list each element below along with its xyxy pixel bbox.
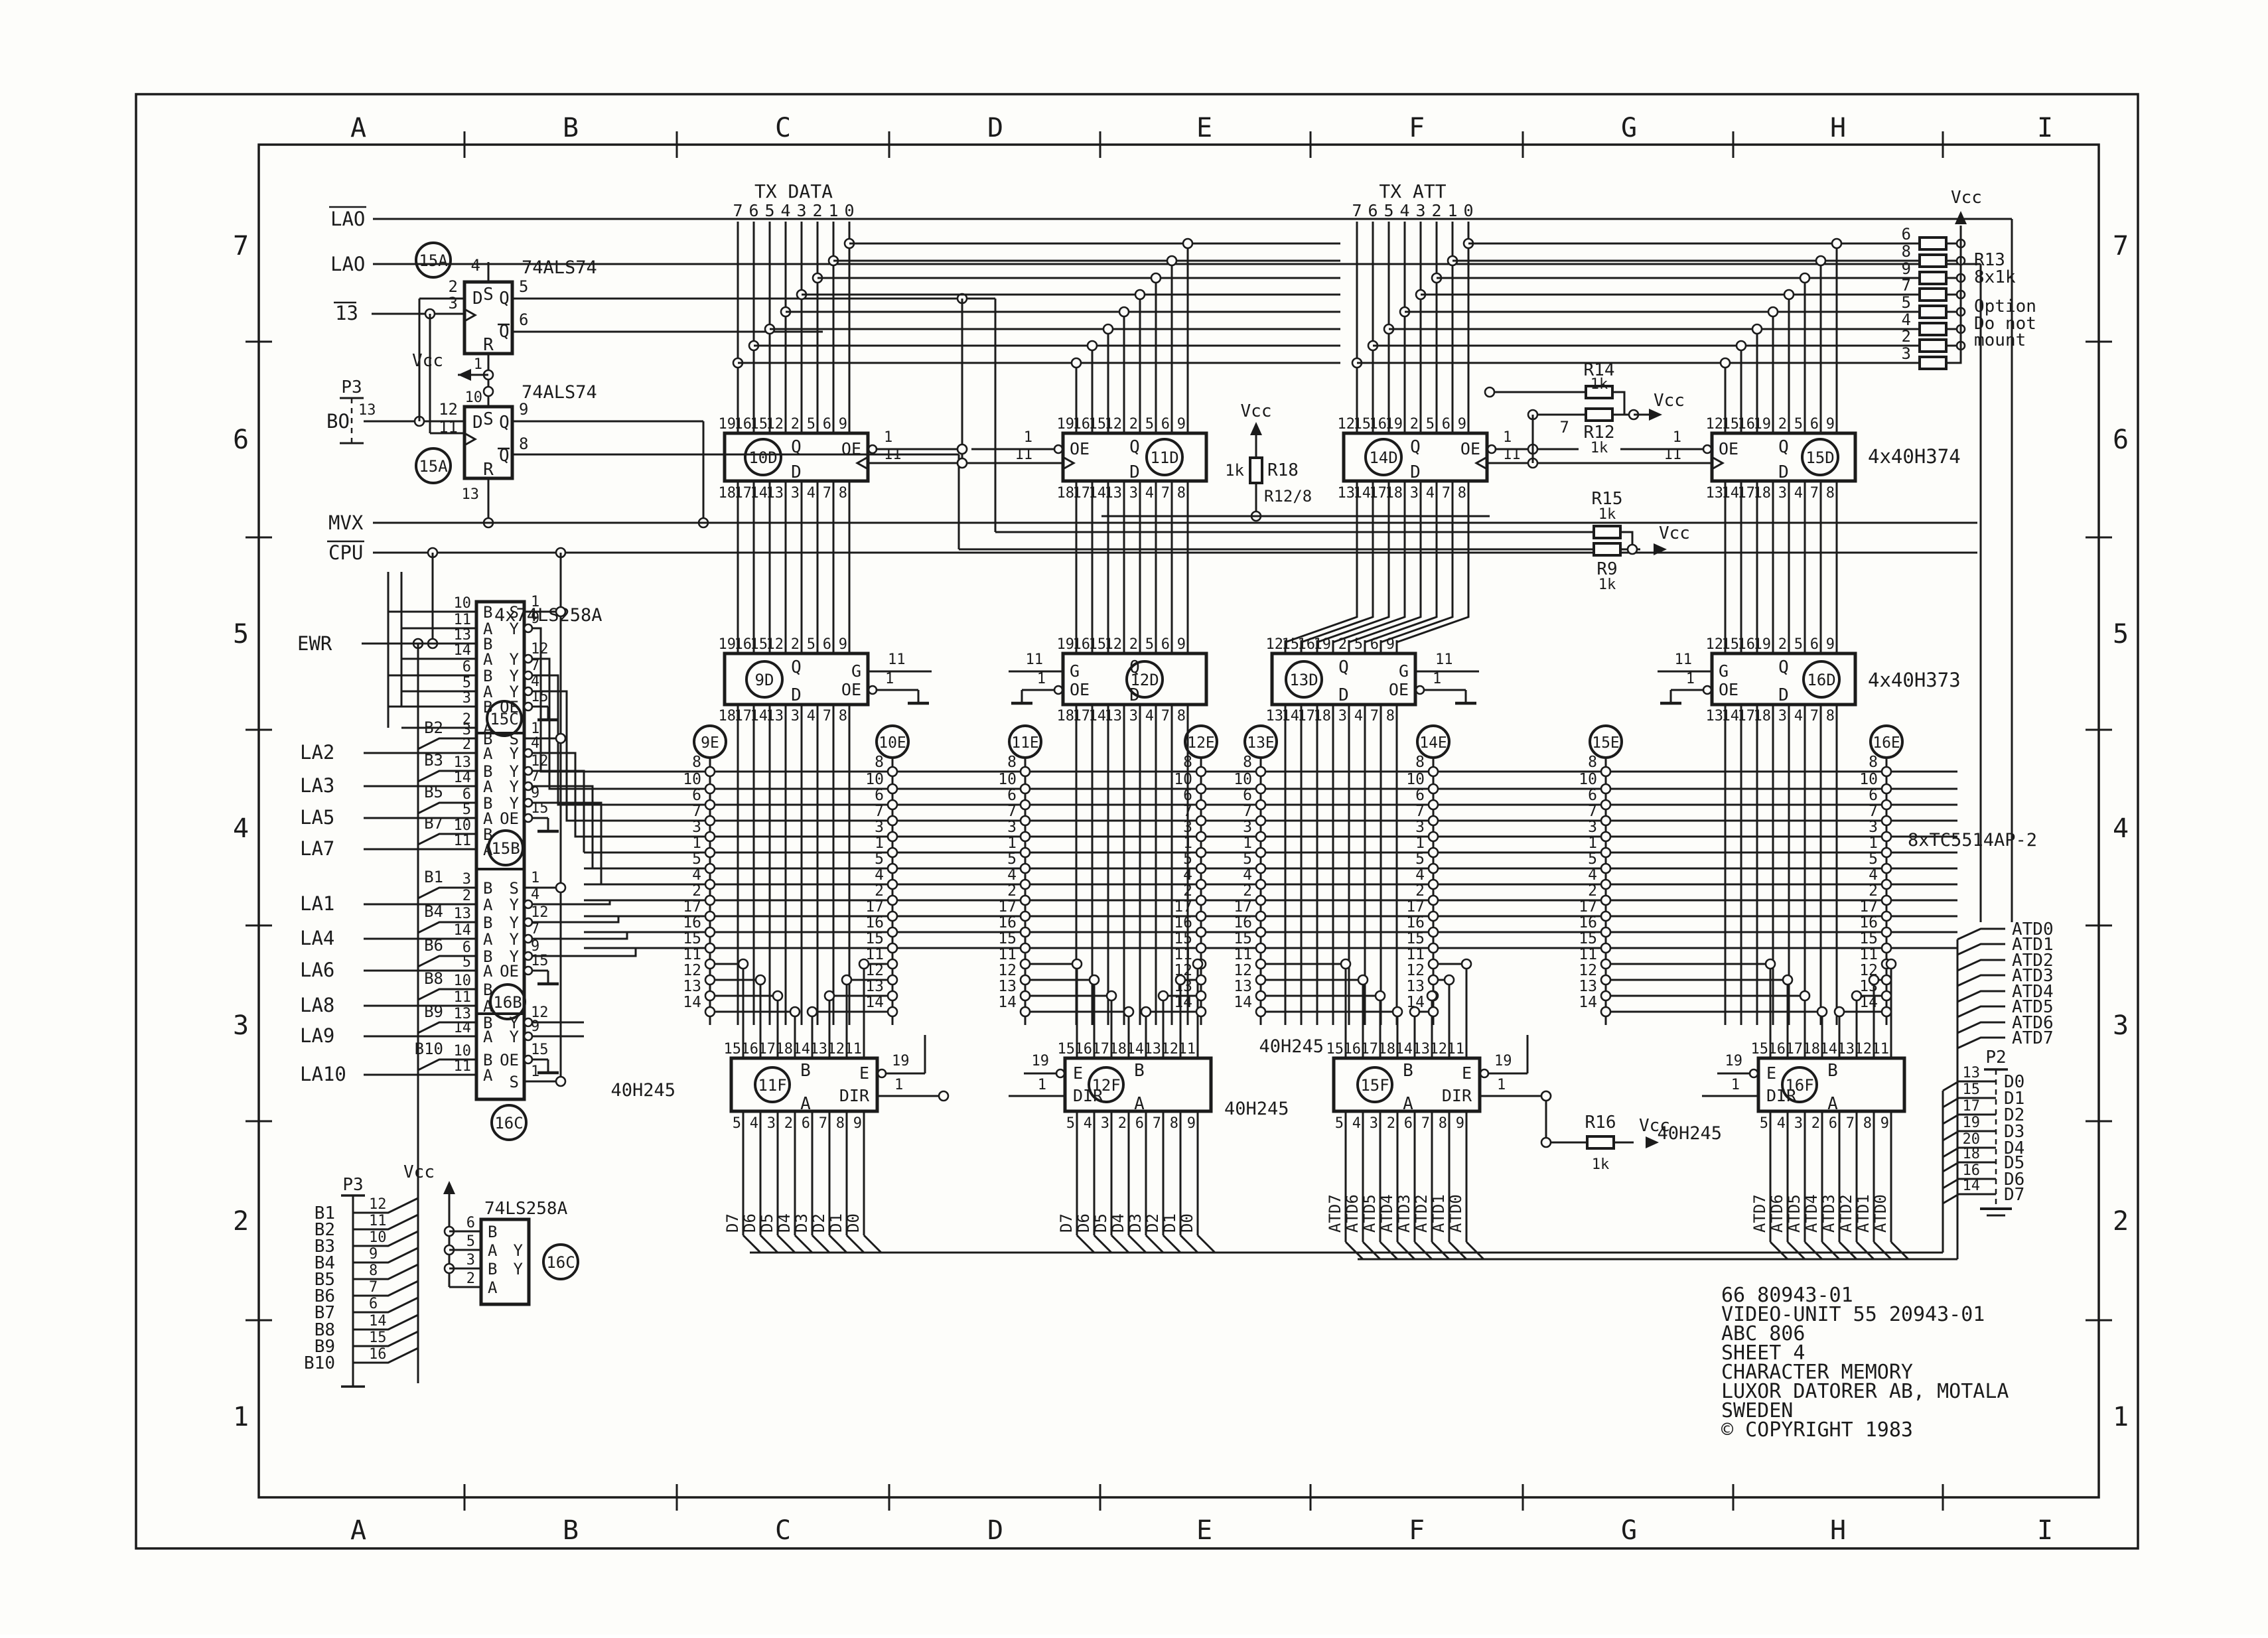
label-res-r15-value: 1k bbox=[1598, 506, 1616, 523]
junction-dot bbox=[1882, 991, 1891, 1000]
p3-top-label: P3 bbox=[341, 377, 362, 397]
label-latch374-oe: OE bbox=[1719, 439, 1738, 458]
label-ram-data_pins-2: 13 bbox=[683, 978, 701, 995]
label-p3-rows-1-pin: 11 bbox=[369, 1213, 387, 1229]
label-latch373-d: D bbox=[1778, 685, 1789, 705]
label-ram-addr_pins-10: 16 bbox=[1406, 914, 1425, 931]
label-mux-sections-0-outs-0-pin: 1 bbox=[531, 594, 539, 610]
label-latch373-oe: OE bbox=[1719, 680, 1738, 699]
junction-dot bbox=[808, 1007, 817, 1016]
label-mux-sections-2-outs-0-port: S bbox=[510, 879, 519, 898]
junction-dot bbox=[1429, 912, 1438, 921]
label-ram-data_pins-0: 11 bbox=[1579, 946, 1597, 963]
label-xcvr-dir_pin: 1 bbox=[894, 1077, 903, 1093]
junction-dot bbox=[1376, 991, 1385, 1000]
label-ram-addr_pins-3: 7 bbox=[1183, 803, 1192, 820]
label-latch373-ics-0-top-1: 16 bbox=[735, 636, 752, 653]
label-latch373-ics-3-ref: 16D bbox=[1807, 671, 1835, 689]
bus-label: ATD4 bbox=[1802, 1194, 1821, 1233]
vcc-label: Vcc bbox=[412, 351, 443, 371]
label-xcvr-top-4: 14 bbox=[1820, 1041, 1838, 1058]
label-ff-u1-pin_s: 4 bbox=[471, 256, 480, 275]
junction-dot bbox=[1358, 975, 1368, 985]
label-p3-rows-6-pin: 6 bbox=[369, 1296, 378, 1312]
label-mux-sections-1-outs-3-port: Y bbox=[510, 778, 520, 796]
label-ff-u2-s: S bbox=[483, 409, 494, 429]
junction-dot bbox=[1485, 387, 1494, 397]
label-latch373-oe_pin: 1 bbox=[885, 671, 894, 687]
junction-dot bbox=[1256, 832, 1265, 841]
label-latch374-ics-0-bot-5: 4 bbox=[807, 485, 815, 502]
junction-dot bbox=[1429, 864, 1438, 873]
label-p2-rows-2-pin: 17 bbox=[1963, 1098, 1981, 1115]
label-ram-addr_pins-11: 15 bbox=[1234, 930, 1252, 947]
label-ram-addr_pins-9: 17 bbox=[1406, 898, 1425, 916]
label-mux-sections-2-outs-1-pin: 4 bbox=[531, 886, 539, 903]
label-latch374-ics-1-bot-7: 8 bbox=[1177, 485, 1186, 502]
label-mux-sections-0-outs-2-pin: 12 bbox=[531, 641, 549, 657]
label-p2-rows-7-pin: 14 bbox=[1963, 1178, 1981, 1194]
label-latch373-ics-2-bot-3: 18 bbox=[1314, 708, 1332, 724]
label-mux-sections-2-rows-5-pin: 5 bbox=[462, 954, 471, 971]
label-xcvr-bot-4: 6 bbox=[1135, 1115, 1144, 1132]
label-ram-data_pins-1: 12 bbox=[1406, 962, 1425, 979]
label-xcvr-top-6: 12 bbox=[1855, 1041, 1873, 1058]
label-latch373-q: Q bbox=[1338, 657, 1349, 677]
label-ram-addr_pins-9: 17 bbox=[1234, 898, 1252, 916]
resistor-body bbox=[1920, 323, 1946, 335]
label-latch373-ics-0-bot-3: 13 bbox=[766, 708, 784, 724]
label-latch373-d: D bbox=[791, 685, 802, 705]
junction-dot bbox=[1601, 991, 1610, 1000]
junction-dot bbox=[888, 975, 897, 985]
label-p3-rows-3-pin: 9 bbox=[369, 1246, 378, 1263]
bus-label: ATD0 bbox=[1871, 1194, 1890, 1233]
label-latch374-ics-0-bot-1: 17 bbox=[735, 485, 752, 502]
label-ff-ref: 15A bbox=[419, 457, 448, 476]
junction-dot bbox=[1135, 290, 1145, 299]
grid-row-right: 4 bbox=[2113, 813, 2129, 844]
label-mux-sections-0-outs-5-pin: 15 bbox=[531, 689, 549, 705]
label-xcvr-top-0: 15 bbox=[1058, 1041, 1076, 1058]
label-ram-addr_pins-9: 17 bbox=[998, 898, 1017, 916]
label-mux-sections-3-outs-3-pin: 1 bbox=[531, 1063, 539, 1080]
tx-att-header: TX ATT bbox=[1379, 180, 1446, 202]
grid-row-left: 7 bbox=[233, 231, 249, 261]
invert-bubble-icon bbox=[1416, 686, 1424, 694]
junction-dot bbox=[1752, 324, 1762, 334]
junction-dot bbox=[1835, 1007, 1844, 1016]
label-latch374-ics-0-bot-2: 14 bbox=[750, 485, 768, 502]
label-latch373-ics-3-bot-2: 17 bbox=[1738, 708, 1756, 724]
label-latch374-ics-1-bot-0: 18 bbox=[1057, 485, 1075, 502]
junction-dot bbox=[739, 959, 748, 969]
label-res-r13-note3: mount bbox=[1974, 330, 2026, 350]
junction-dot bbox=[1021, 784, 1030, 793]
junction-dot bbox=[888, 880, 897, 889]
bus-label: D4 bbox=[775, 1213, 794, 1233]
label-ram-addr_pins-2: 6 bbox=[875, 787, 884, 804]
label-mux-sections-3-rows-1-pin: 14 bbox=[454, 1020, 472, 1036]
label-latch374-ics-0-bot-7: 8 bbox=[839, 485, 847, 502]
p3-pin: 13 bbox=[358, 402, 376, 419]
label-xcvr-bot-6: 8 bbox=[1170, 1115, 1178, 1132]
junction-dot bbox=[1256, 848, 1265, 857]
label-res-r16-value: 1k bbox=[1592, 1156, 1610, 1173]
label-ram-addr_pins-4: 3 bbox=[1588, 819, 1597, 836]
label-xcvr-e_pin: 19 bbox=[1494, 1053, 1512, 1069]
label-res-r13-pins-7: 3 bbox=[1902, 344, 1911, 363]
label-ram-addr_pins-11: 15 bbox=[1406, 930, 1425, 947]
label-mux-sections-1-rows-3-pin: 14 bbox=[454, 770, 472, 786]
signal-LA1: LA1 bbox=[300, 892, 334, 915]
bus-label: ATD3 bbox=[1395, 1194, 1413, 1233]
junction-dot bbox=[1021, 943, 1030, 953]
junction-dot bbox=[1882, 800, 1891, 809]
junction-dot bbox=[1816, 256, 1825, 265]
label-latch373-ics-3-bot-3: 18 bbox=[1754, 708, 1772, 724]
junction-dot bbox=[1072, 959, 1082, 969]
label-mux-sections-1-outs-5-pin: 15 bbox=[531, 800, 549, 817]
resistor-body bbox=[1594, 526, 1620, 538]
label-ram-addr_pins-2: 6 bbox=[1243, 787, 1252, 804]
junction-dot bbox=[1882, 767, 1891, 776]
label-tx_att-bits-7: 0 bbox=[1463, 201, 1473, 220]
junction-dot bbox=[1021, 816, 1030, 825]
label-xcvr-bot-5: 7 bbox=[1846, 1115, 1855, 1132]
label-mux-sections-1-outs-5-port: OE bbox=[500, 809, 519, 828]
label-ram-addr_pins-5: 1 bbox=[1243, 835, 1252, 852]
invert-bubble-icon bbox=[869, 445, 877, 453]
label-xcvr-a: A bbox=[800, 1094, 811, 1114]
bus-label: D5 bbox=[758, 1213, 776, 1233]
bus-label: D1 bbox=[827, 1213, 845, 1233]
junction-dot bbox=[957, 444, 967, 454]
label-latch373-ics-1-top-4: 2 bbox=[1129, 636, 1138, 653]
label-ram-addr_pins-7: 4 bbox=[692, 866, 701, 884]
label-xcvr-bot-2: 3 bbox=[767, 1115, 776, 1132]
junction-dot bbox=[1541, 1138, 1551, 1147]
label-ram-addr_pins-6: 5 bbox=[1869, 851, 1878, 868]
label-xcvr-bot-6: 8 bbox=[1863, 1115, 1872, 1132]
label-latch374-ics-3-ref: 15D bbox=[1806, 448, 1834, 467]
label-xcvr-top-1: 16 bbox=[1768, 1041, 1786, 1058]
label-ram-addr_pins-6: 5 bbox=[1183, 851, 1192, 868]
label-ram-cols-3: 12E bbox=[1187, 734, 1215, 752]
junction-dot bbox=[1256, 959, 1265, 969]
label-mux-sections-0-rows-1-pin: 11 bbox=[454, 612, 472, 628]
label-ram-addr_pins-5: 1 bbox=[875, 835, 884, 852]
invert-bubble-icon bbox=[869, 686, 877, 694]
vcc-label: Vcc bbox=[1654, 391, 1685, 411]
label-xcvr-bot-2: 3 bbox=[1370, 1115, 1378, 1132]
label-ram-addr_pins-1: 10 bbox=[1406, 771, 1425, 788]
junction-dot bbox=[773, 991, 782, 1000]
label-tx_att-bits-1: 6 bbox=[1368, 201, 1378, 220]
label-latch373-ics-1-bot-3: 13 bbox=[1105, 708, 1123, 724]
junction-dot bbox=[1882, 880, 1891, 889]
label-ram-addr_pins-1: 10 bbox=[683, 771, 701, 788]
invert-bubble-icon bbox=[1054, 445, 1062, 453]
bus-label: D0 bbox=[844, 1213, 863, 1233]
label-mux-sections-1-rows-7-pin: 11 bbox=[454, 833, 472, 849]
junction-dot bbox=[957, 458, 967, 468]
vcc-label: Vcc bbox=[1659, 523, 1690, 543]
label-mux-sections-1-outs-3-pin: 7 bbox=[531, 768, 539, 785]
label-latch373-oe: OE bbox=[841, 680, 861, 699]
label-mux-sections-2-ref: 16B bbox=[493, 993, 522, 1012]
label-xcvr-e: E bbox=[1462, 1063, 1472, 1083]
label-ram-data_pins-2: 13 bbox=[1406, 978, 1425, 995]
label-xcvr-top-4: 14 bbox=[1127, 1041, 1145, 1058]
label-latch374-ics-2-top-4: 2 bbox=[1410, 416, 1419, 433]
label-xcvr-top-1: 16 bbox=[1344, 1041, 1362, 1058]
junction-dot bbox=[1341, 959, 1350, 969]
label-ram-addr_pins-3: 7 bbox=[875, 803, 884, 820]
label-latch373-g_pin: 11 bbox=[1026, 651, 1044, 668]
label-mux-sections-3-outs-2-port: OE bbox=[500, 1051, 519, 1069]
junction-dot bbox=[888, 816, 897, 825]
label-xcvr-top-4: 14 bbox=[793, 1041, 811, 1058]
label-latch374-ics-1-bot-1: 17 bbox=[1073, 485, 1091, 502]
label-latch374-ics-1-ref: 11D bbox=[1150, 448, 1178, 467]
junction-dot bbox=[1601, 959, 1610, 969]
junction-dot bbox=[1601, 767, 1610, 776]
label-latch373-ics-0-top-4: 2 bbox=[791, 636, 800, 653]
label-latch373-ics-1-top-2: 15 bbox=[1089, 636, 1107, 653]
signal-atd: ATD7 bbox=[2012, 1028, 2054, 1048]
junction-dot bbox=[1256, 767, 1265, 776]
label-latch374-ics-3-top-3: 19 bbox=[1754, 416, 1772, 433]
label-xcvr-e_pin: 19 bbox=[1725, 1053, 1743, 1069]
grid-col-top: G bbox=[1621, 113, 1637, 143]
junction-dot bbox=[1256, 927, 1265, 937]
label-ram-addr_pins-8: 2 bbox=[1869, 882, 1878, 900]
b-tag: B1 bbox=[424, 868, 443, 886]
label-ram-data_pins-0: 11 bbox=[1859, 946, 1878, 963]
b-tag: B5 bbox=[424, 783, 443, 801]
grid-col-bottom: C bbox=[775, 1515, 791, 1546]
label-p2-rows-1-pin: 15 bbox=[1963, 1081, 1981, 1098]
bus-label: ATD6 bbox=[1768, 1194, 1786, 1233]
signal-LA4: LA4 bbox=[300, 927, 334, 949]
label-ram-addr_pins-9: 17 bbox=[683, 898, 701, 916]
label-latch374-ics-1-bot-2: 14 bbox=[1089, 485, 1107, 502]
label-latch374-ics-2-top-2: 16 bbox=[1370, 416, 1387, 433]
junction-dot bbox=[705, 800, 715, 809]
junction-dot bbox=[1429, 1007, 1438, 1016]
label-latch374-ics-3-top-2: 16 bbox=[1738, 416, 1756, 433]
label-latch373-q: Q bbox=[1129, 657, 1140, 677]
junction-dot bbox=[1196, 991, 1206, 1000]
invert-bubble-icon bbox=[524, 703, 532, 711]
label-latch374-ics-3-top-7: 9 bbox=[1826, 416, 1835, 433]
signal-LA2: LA2 bbox=[300, 741, 334, 764]
label-xcvr-bot-3: 2 bbox=[1387, 1115, 1395, 1132]
bus-label: D4 bbox=[1109, 1213, 1127, 1233]
label-mux-sections-2-rows-1-pin: 2 bbox=[462, 888, 471, 904]
label-tx_att-bits-2: 5 bbox=[1383, 201, 1393, 220]
label-latch373-ics-3-bot-1: 14 bbox=[1722, 708, 1740, 724]
label-ram-data_pins-3: 14 bbox=[1579, 994, 1597, 1011]
label-tx_att-bits-5: 2 bbox=[1431, 201, 1441, 220]
junction-dot bbox=[1429, 816, 1438, 825]
bus-label: D7 bbox=[1057, 1213, 1076, 1233]
label-ram-data_pins-1: 12 bbox=[683, 962, 701, 979]
label-xcvr-bot-0: 5 bbox=[1066, 1115, 1075, 1132]
junction-dot bbox=[1832, 239, 1841, 248]
invert-bubble-icon bbox=[1750, 1069, 1758, 1077]
grid-row-right: 7 bbox=[2113, 231, 2129, 261]
label-ram-addr_pins-10: 16 bbox=[1174, 914, 1192, 931]
label-mux-sections-0-outs-5-port: OE bbox=[500, 698, 519, 717]
grid-row-right: 3 bbox=[2113, 1010, 2129, 1041]
grid-row-left: 6 bbox=[233, 425, 249, 455]
label-mux-sections-3-rows-3-port: A bbox=[483, 1066, 493, 1085]
label-mux-sections-1-rows-5-pin: 5 bbox=[462, 801, 471, 818]
junction-dot bbox=[1021, 880, 1030, 889]
label-xcvr-b: B bbox=[1134, 1061, 1145, 1081]
b-tag: B7 bbox=[424, 814, 443, 833]
junction-dot bbox=[705, 927, 715, 937]
label-latch374-oe: OE bbox=[1460, 439, 1480, 458]
label-latch374-ics-2-top-1: 15 bbox=[1354, 416, 1372, 433]
label-latch374-ics-0-top-3: 12 bbox=[766, 416, 784, 433]
label-ram-addr_pins-5: 1 bbox=[692, 835, 701, 852]
junction-dot bbox=[1800, 991, 1809, 1000]
label-mux-sections-2-rows-0-pin: 3 bbox=[462, 871, 471, 888]
label-res-r12-pin: 7 bbox=[1560, 418, 1569, 437]
label-xcvr-ics-0-ref: 11F bbox=[758, 1076, 786, 1095]
label-ff-u1-r: R bbox=[483, 335, 494, 355]
label-mux2-rows-3-pin: 2 bbox=[466, 1270, 475, 1287]
label-latch373-ics-0-ref: 9D bbox=[755, 671, 774, 689]
junction-dot bbox=[1107, 991, 1116, 1000]
label-xcvr-top-0: 15 bbox=[724, 1041, 742, 1058]
junction-dot bbox=[484, 387, 493, 396]
bus-label: D0 bbox=[1178, 1213, 1196, 1233]
label-xcvr-bot-2: 3 bbox=[1794, 1115, 1803, 1132]
schematic-sheet: AABBCCDDEEFFGGHHII7766554433221166 80943… bbox=[0, 0, 2268, 1635]
label-ram-addr_pins-6: 5 bbox=[1007, 851, 1017, 868]
grid-row-left: 1 bbox=[233, 1402, 249, 1432]
junction-dot bbox=[1445, 975, 1454, 985]
label-latch373-g: G bbox=[1399, 661, 1409, 681]
junction-dot bbox=[1736, 341, 1746, 350]
label-latch374-ics-3-bot-6: 7 bbox=[1810, 485, 1819, 502]
label-latch373-ics-0-top-2: 15 bbox=[750, 636, 768, 653]
label-xcvr-bot-5: 7 bbox=[1153, 1115, 1161, 1132]
label-ram-addr_pins-0: 8 bbox=[1183, 754, 1192, 771]
junction-dot bbox=[1021, 1007, 1030, 1016]
label-latch374-clk_pin: 11 bbox=[1503, 446, 1521, 463]
junction-dot bbox=[1869, 975, 1878, 985]
junction-dot bbox=[705, 848, 715, 857]
b-tag: B6 bbox=[424, 936, 443, 955]
junction-dot bbox=[1021, 896, 1030, 905]
resistor-body bbox=[1250, 458, 1262, 483]
label-ram-addr_pins-2: 6 bbox=[1588, 787, 1597, 804]
invert-bubble-icon bbox=[1703, 445, 1711, 453]
label-ram-addr_pins-6: 5 bbox=[1243, 851, 1252, 868]
label-ram-addr_pins-10: 16 bbox=[1859, 914, 1878, 931]
grid-col-top: A bbox=[350, 113, 366, 143]
label-latch373-ics-2-bot-1: 14 bbox=[1282, 708, 1300, 724]
label-latch374-ics-1-top-2: 15 bbox=[1089, 416, 1107, 433]
label-latch374-ics-3-bot-5: 4 bbox=[1794, 485, 1803, 502]
label-ram-addr_pins-3: 7 bbox=[1007, 803, 1017, 820]
signal-lao-bar: LAO bbox=[330, 208, 365, 230]
label-mux-sections-0-rows-6-pin: 3 bbox=[462, 690, 471, 707]
label-latch374-ics-3-bot-4: 3 bbox=[1778, 485, 1787, 502]
label-res-r14-value: 1k bbox=[1591, 376, 1608, 393]
junction-dot bbox=[888, 767, 897, 776]
grid-col-bottom: A bbox=[350, 1515, 366, 1546]
label-mux-sections-1-rows-1-port: A bbox=[483, 744, 493, 763]
junction-dot bbox=[556, 1077, 565, 1086]
label-mux-sections-3-outs-2-pin: 15 bbox=[531, 1042, 549, 1058]
label-tx_data-bits-2: 5 bbox=[764, 201, 774, 220]
label-latch374-ics-3-top-4: 2 bbox=[1778, 416, 1787, 433]
junction-dot bbox=[1256, 991, 1265, 1000]
junction-dot bbox=[859, 959, 869, 969]
junction-dot bbox=[888, 959, 897, 969]
label-latch374-ics-0-bot-3: 13 bbox=[766, 485, 784, 502]
label-ff-u1-s: S bbox=[483, 285, 494, 305]
label-mux-sections-2-rows-3-pin: 14 bbox=[454, 922, 472, 939]
label-xcvr-dir_pin: 1 bbox=[1038, 1077, 1046, 1093]
junction-dot bbox=[1196, 864, 1206, 873]
bus-label: D1 bbox=[1161, 1213, 1179, 1233]
label-latch373-g_pin: 11 bbox=[888, 651, 906, 668]
label-res-r13-value: 8x1k bbox=[1974, 267, 2016, 287]
junction-dot bbox=[756, 975, 765, 985]
junction-dot bbox=[1196, 912, 1206, 921]
signal-lao: LAO bbox=[330, 253, 365, 275]
label-latch374-oe_pin: 1 bbox=[1673, 429, 1681, 446]
label-ram-addr_pins-9: 17 bbox=[1174, 898, 1192, 916]
label-latch374-ics-3-bot-7: 8 bbox=[1826, 485, 1835, 502]
label-latch373-oe: OE bbox=[1389, 680, 1409, 699]
junction-dot bbox=[888, 991, 897, 1000]
part-74als74: 74ALS74 bbox=[522, 382, 597, 403]
label-mux-sections-0-rows-2-pin: 13 bbox=[454, 627, 472, 644]
junction-dot bbox=[1256, 975, 1265, 985]
junction-dot bbox=[1256, 880, 1265, 889]
label-xcvr-dir: DIR bbox=[1073, 1086, 1103, 1105]
label-latch373-ics-3-top-3: 19 bbox=[1754, 636, 1772, 653]
label-ram-data_pins-0: 11 bbox=[1174, 946, 1192, 963]
junction-dot bbox=[1429, 975, 1438, 985]
junction-dot bbox=[1393, 1007, 1402, 1016]
label-ram-addr_pins-3: 7 bbox=[692, 803, 701, 820]
junction-dot bbox=[888, 943, 897, 953]
label-latch374-ics-3-bot-2: 17 bbox=[1738, 485, 1756, 502]
label-latch373-ics-1-top-6: 6 bbox=[1161, 636, 1170, 653]
label-ram-data_pins-1: 12 bbox=[1234, 962, 1252, 979]
label-ram-data_pins-1: 12 bbox=[1579, 962, 1597, 979]
label-tx_att-bits-3: 4 bbox=[1399, 201, 1409, 220]
label-res-r13-pins-5: 4 bbox=[1902, 310, 1911, 329]
label-mux-sections-1-ref: 15B bbox=[491, 839, 520, 858]
label-res-r16-name: R16 bbox=[1585, 1113, 1616, 1132]
label-mux-sections-2-outs-3-port: Y bbox=[510, 930, 520, 949]
label-ram-data_pins-0: 11 bbox=[1406, 946, 1425, 963]
junction-dot bbox=[888, 784, 897, 793]
label-ram-addr_pins-3: 7 bbox=[1869, 803, 1878, 820]
label-latch374-ics-3-top-1: 15 bbox=[1722, 416, 1740, 433]
grid-col-bottom: I bbox=[2037, 1515, 2053, 1546]
